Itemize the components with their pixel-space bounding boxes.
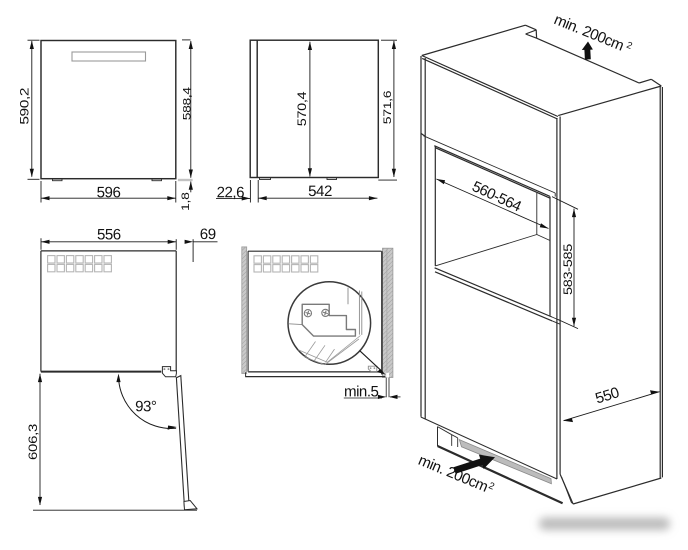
svg-text:69: 69 bbox=[200, 226, 216, 243]
svg-text:min.5: min.5 bbox=[344, 383, 379, 400]
svg-text:556: 556 bbox=[97, 226, 121, 243]
svg-text:596: 596 bbox=[97, 184, 121, 201]
svg-text:1,8: 1,8 bbox=[179, 192, 191, 211]
svg-text:93°: 93° bbox=[135, 398, 157, 415]
svg-text:542: 542 bbox=[308, 183, 332, 200]
svg-text:570,4: 570,4 bbox=[295, 92, 308, 127]
svg-text:606,3: 606,3 bbox=[26, 424, 39, 460]
svg-text:588,4: 588,4 bbox=[181, 87, 193, 120]
svg-text:583-585: 583-585 bbox=[561, 244, 574, 295]
svg-text:590,2: 590,2 bbox=[17, 87, 31, 124]
svg-text:571,6: 571,6 bbox=[381, 91, 393, 125]
svg-text:22,6: 22,6 bbox=[217, 184, 244, 201]
